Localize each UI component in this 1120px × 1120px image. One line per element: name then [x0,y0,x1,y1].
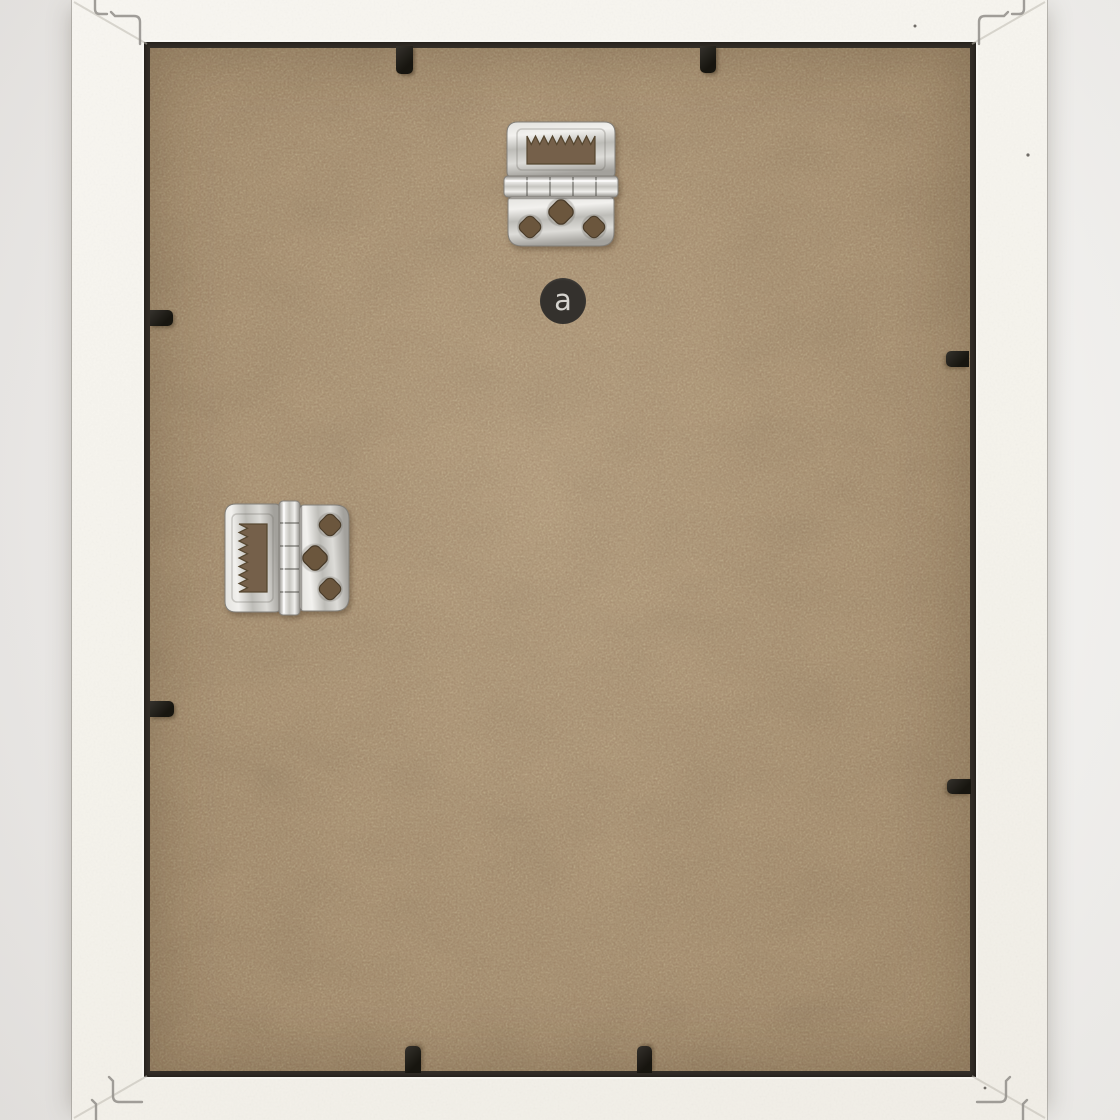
sawtooth-hanger-left [223,500,351,616]
retainer-clip-right-upper [946,351,969,367]
retainer-clip-top-right [700,46,716,73]
retainer-clip-left-upper [150,310,173,326]
brand-letter: a [554,286,572,315]
retainer-clip-bottom-left [405,1046,421,1073]
retainer-clip-top-left [396,46,413,74]
retainer-clip-left-lower [150,701,174,717]
sawtooth-hanger-top [503,120,619,248]
retainer-clip-bottom-center [637,1046,652,1073]
retainer-clip-right-lower [947,779,971,794]
picture-frame-back-photo: a [0,0,1120,1120]
brand-badge: a [540,278,586,324]
